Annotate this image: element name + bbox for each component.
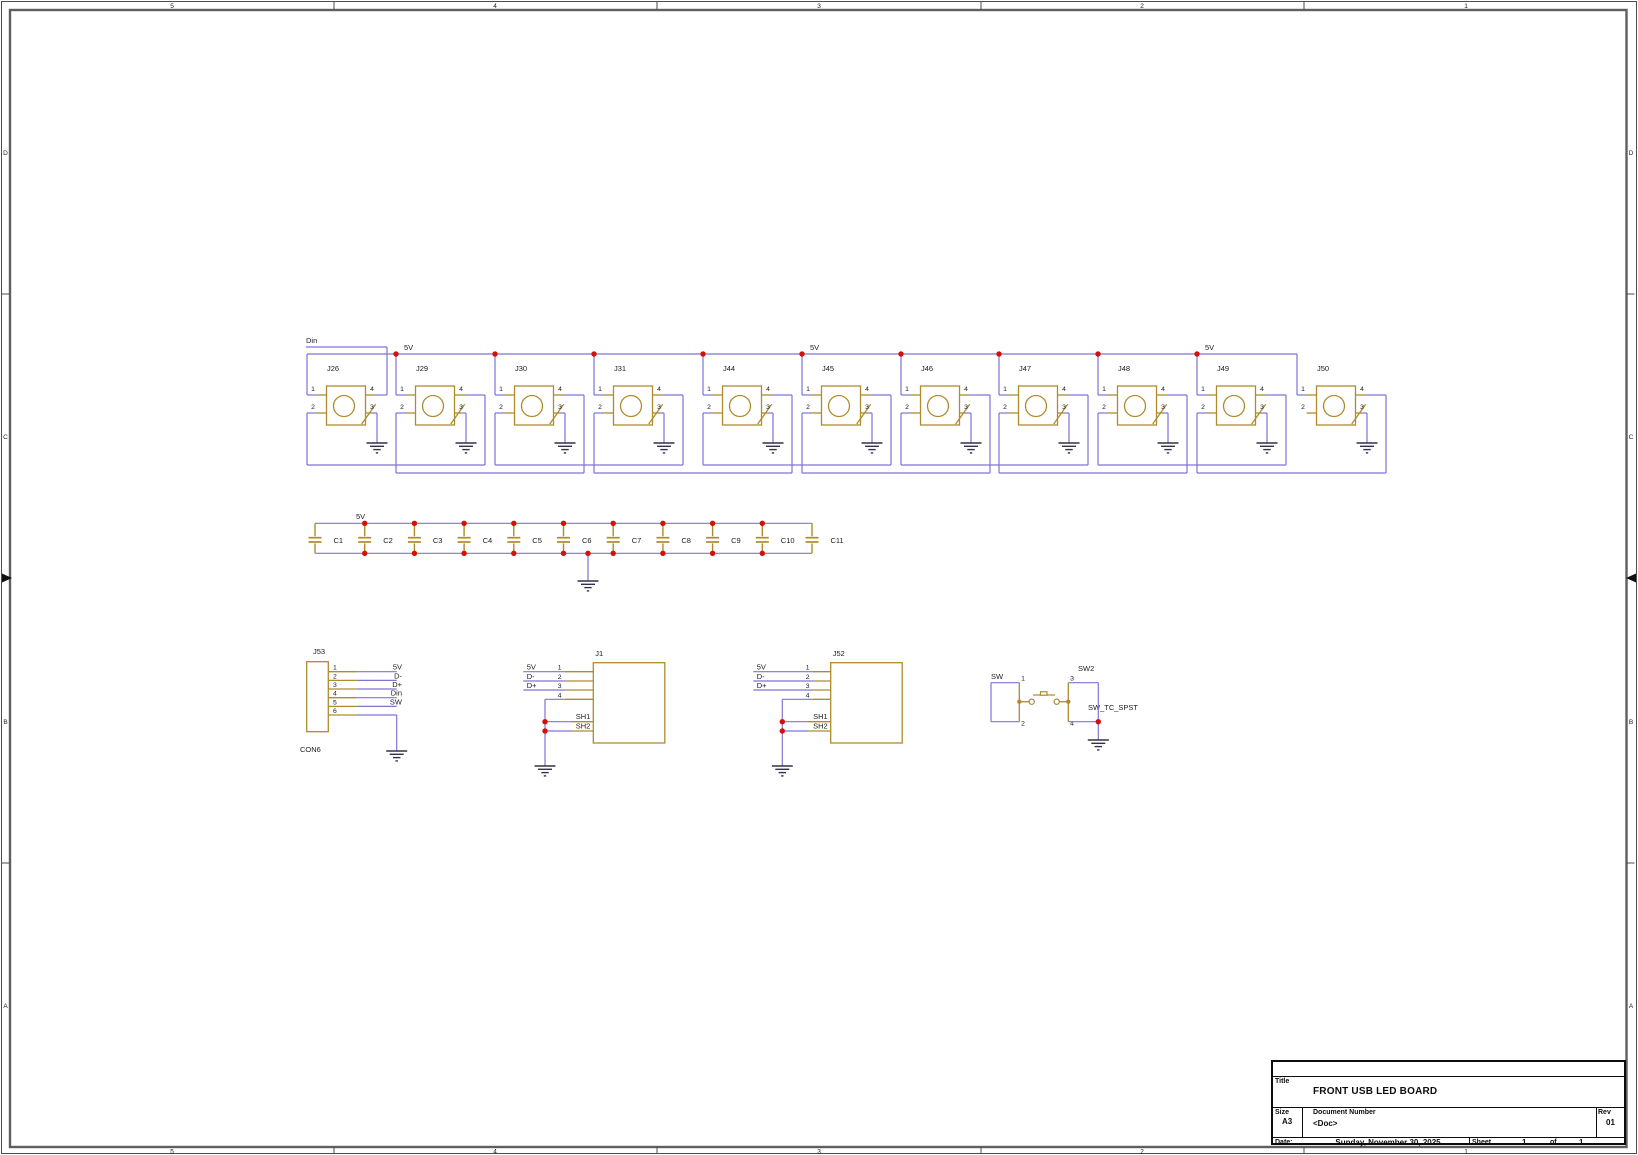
of-label: of	[1550, 1139, 1557, 1146]
svg-text:J1: J1	[595, 649, 603, 658]
svg-text:C7: C7	[632, 536, 642, 545]
title-block-divider	[1273, 1076, 1624, 1077]
svg-text:2: 2	[499, 404, 503, 411]
capacitor-C7[interactable]: C7	[607, 523, 642, 553]
svg-text:1: 1	[806, 386, 810, 393]
svg-text:1: 1	[1464, 3, 1468, 10]
svg-text:SH1: SH1	[813, 712, 828, 721]
title-block-divider	[1273, 1107, 1624, 1108]
capacitor-C1[interactable]: C1	[309, 523, 344, 553]
junction-dot	[561, 551, 566, 556]
svg-text:C6: C6	[582, 536, 592, 545]
svg-text:C1: C1	[334, 536, 344, 545]
svg-text:J30: J30	[515, 364, 527, 373]
junction-dot	[660, 521, 665, 526]
svg-text:3: 3	[558, 683, 562, 690]
svg-text:SH2: SH2	[813, 722, 828, 731]
svg-text:1: 1	[1021, 676, 1025, 683]
junction-dot	[542, 719, 547, 724]
capacitor-C9[interactable]: C9	[706, 523, 741, 553]
svg-text:C9: C9	[731, 536, 741, 545]
svg-text:J45: J45	[822, 364, 834, 373]
junction-dot	[700, 351, 705, 356]
svg-text:D+: D+	[392, 680, 402, 689]
junction-dot	[511, 551, 516, 556]
svg-text:C: C	[3, 434, 8, 441]
schematic-canvas[interactable]: 5544332211DDCCBBAA5V5V5VDinJ261243J29124…	[0, 0, 1638, 1155]
svg-text:J46: J46	[921, 364, 933, 373]
svg-text:J47: J47	[1019, 364, 1031, 373]
svg-text:CON6: CON6	[300, 745, 321, 754]
svg-text:3: 3	[817, 1149, 821, 1155]
size-value: A3	[1282, 1118, 1292, 1126]
svg-text:SH1: SH1	[576, 712, 591, 721]
junction-dot	[1096, 719, 1101, 724]
svg-text:3: 3	[1360, 404, 1364, 411]
svg-text:J44: J44	[723, 364, 735, 373]
svg-text:1: 1	[707, 386, 711, 393]
svg-text:5: 5	[333, 699, 337, 706]
schematic-page: 5544332211DDCCBBAA5V5V5VDinJ261243J29124…	[0, 0, 1638, 1155]
junction-dot	[611, 521, 616, 526]
svg-text:3: 3	[657, 404, 661, 411]
svg-text:2: 2	[333, 673, 337, 680]
led-J46[interactable]: J461243	[901, 354, 1088, 465]
led-J30[interactable]: J301243	[495, 354, 683, 465]
date-label: Date:	[1275, 1139, 1293, 1146]
junction-dot	[760, 551, 765, 556]
svg-text:J29: J29	[416, 364, 428, 373]
svg-text:4: 4	[964, 386, 968, 393]
svg-text:4: 4	[1062, 386, 1066, 393]
svg-text:J48: J48	[1118, 364, 1130, 373]
title-block-divider	[1469, 1137, 1470, 1144]
rev-value: 01	[1606, 1119, 1615, 1127]
svg-text:3: 3	[1070, 676, 1074, 683]
svg-text:3: 3	[806, 683, 810, 690]
led-J48[interactable]: J481243	[1098, 354, 1286, 465]
date-value: Sunday, November 30, 2025	[1308, 1139, 1468, 1147]
svg-text:C10: C10	[781, 536, 795, 545]
svg-text:5V: 5V	[810, 343, 819, 352]
title-label: Title	[1275, 1078, 1289, 1085]
svg-text:C4: C4	[483, 536, 493, 545]
document-number-value: <Doc>	[1313, 1120, 1337, 1128]
capacitor-C4[interactable]: C4	[458, 523, 493, 553]
document-number-label: Document Number	[1313, 1109, 1376, 1116]
schematic-title: FRONT USB LED BOARD	[1313, 1087, 1437, 1097]
junction-dot	[780, 728, 785, 733]
svg-text:3: 3	[964, 404, 968, 411]
svg-text:4: 4	[370, 386, 374, 393]
sheet-label: Sheet	[1472, 1139, 1491, 1146]
junction-dot	[461, 521, 466, 526]
svg-text:1: 1	[1301, 386, 1305, 393]
size-label: Size	[1275, 1109, 1289, 1116]
junction-dot	[710, 551, 715, 556]
junction-dot	[393, 351, 398, 356]
svg-text:1: 1	[1003, 386, 1007, 393]
svg-text:D-: D-	[527, 672, 535, 681]
svg-text:C3: C3	[433, 536, 443, 545]
title-block-divider	[1596, 1107, 1597, 1137]
svg-text:D-: D-	[394, 671, 402, 680]
svg-text:3: 3	[1161, 404, 1165, 411]
svg-text:2: 2	[1301, 404, 1305, 411]
svg-text:A: A	[3, 1003, 8, 1010]
junction-dot	[561, 521, 566, 526]
svg-text:4: 4	[333, 691, 337, 698]
svg-text:SH2: SH2	[576, 722, 591, 731]
junction-dot	[362, 521, 367, 526]
svg-text:C2: C2	[383, 536, 393, 545]
svg-text:5V: 5V	[1205, 343, 1214, 352]
svg-text:C11: C11	[831, 536, 844, 545]
capacitor-C5[interactable]: C5	[507, 523, 542, 553]
svg-text:4: 4	[459, 386, 463, 393]
svg-text:5V: 5V	[527, 663, 536, 672]
svg-text:1: 1	[806, 665, 810, 672]
svg-text:2: 2	[1003, 404, 1007, 411]
junction-dot	[585, 551, 590, 556]
svg-text:4: 4	[1360, 386, 1364, 393]
svg-text:B: B	[1629, 719, 1633, 726]
svg-text:C5: C5	[532, 536, 542, 545]
svg-text:3: 3	[817, 3, 821, 10]
svg-text:D-: D-	[757, 672, 765, 681]
svg-text:C8: C8	[681, 536, 691, 545]
svg-text:4: 4	[766, 386, 770, 393]
svg-text:SW_TC_SPST: SW_TC_SPST	[1088, 703, 1138, 712]
svg-text:2: 2	[558, 674, 562, 681]
capacitor-C6[interactable]: C6	[557, 523, 592, 553]
svg-text:J31: J31	[614, 364, 626, 373]
svg-text:B: B	[3, 719, 7, 726]
svg-text:6: 6	[333, 708, 337, 715]
led-row: 5V5V5VDinJ261243J291243J301243J311243J44…	[306, 336, 1386, 473]
svg-text:3: 3	[1062, 404, 1066, 411]
svg-text:2: 2	[598, 404, 602, 411]
svg-text:1: 1	[311, 386, 315, 393]
svg-text:J50: J50	[1317, 364, 1329, 373]
svg-text:J52: J52	[833, 649, 845, 658]
svg-text:1: 1	[400, 386, 404, 393]
svg-text:Din: Din	[306, 336, 317, 345]
junction-dot	[1095, 351, 1100, 356]
svg-text:2: 2	[1140, 3, 1144, 10]
svg-text:4: 4	[657, 386, 661, 393]
svg-text:2: 2	[1201, 404, 1205, 411]
svg-text:4: 4	[493, 3, 497, 10]
svg-text:A: A	[1629, 1003, 1634, 1010]
svg-text:1: 1	[598, 386, 602, 393]
svg-text:4: 4	[493, 1149, 497, 1155]
svg-text:1: 1	[558, 665, 562, 672]
svg-text:3: 3	[766, 404, 770, 411]
svg-text:2: 2	[1021, 721, 1025, 728]
svg-text:2: 2	[905, 404, 909, 411]
svg-text:5: 5	[170, 3, 174, 10]
svg-text:1: 1	[499, 386, 503, 393]
svg-text:SW: SW	[390, 697, 403, 706]
junction-dot	[710, 521, 715, 526]
svg-text:1: 1	[1102, 386, 1106, 393]
svg-text:4: 4	[558, 692, 562, 699]
svg-text:5: 5	[170, 1149, 174, 1155]
led-J50[interactable]: J501243	[1297, 354, 1378, 453]
svg-text:3: 3	[370, 404, 374, 411]
capacitor-C8[interactable]: C8	[656, 523, 691, 553]
svg-text:2: 2	[1102, 404, 1106, 411]
junction-dot	[760, 521, 765, 526]
junction-dot	[799, 351, 804, 356]
svg-text:2: 2	[400, 404, 404, 411]
capacitor-C3[interactable]: C3	[408, 523, 443, 553]
junction-dot	[611, 551, 616, 556]
svg-text:4: 4	[1260, 386, 1264, 393]
connector-j52[interactable]: J5212345VD-D+SH1SH2	[753, 649, 902, 776]
connector-j53[interactable]: J53CON61234565VD-D+DinSW	[300, 647, 407, 761]
sheet-total: 1	[1579, 1139, 1583, 1147]
svg-text:1: 1	[1464, 1149, 1468, 1155]
title-block-divider	[1302, 1107, 1303, 1137]
svg-text:J49: J49	[1217, 364, 1229, 373]
svg-text:D+: D+	[757, 681, 767, 690]
junction-dot	[542, 728, 547, 733]
junction-dot	[492, 351, 497, 356]
svg-text:1: 1	[905, 386, 909, 393]
page-border: 5544332211DDCCBBAA	[2, 2, 1637, 1155]
svg-text:2: 2	[806, 674, 810, 681]
capacitor-C11[interactable]: C11	[806, 523, 844, 553]
svg-text:D: D	[3, 150, 8, 157]
svg-text:5V: 5V	[356, 512, 365, 521]
capacitor-C2[interactable]: C2	[358, 523, 393, 553]
svg-text:3: 3	[459, 404, 463, 411]
svg-text:Din: Din	[391, 689, 402, 698]
svg-text:3: 3	[558, 404, 562, 411]
svg-text:J26: J26	[327, 364, 339, 373]
svg-text:2: 2	[806, 404, 810, 411]
svg-text:SW2: SW2	[1078, 664, 1094, 673]
svg-text:3: 3	[865, 404, 869, 411]
junction-dot	[660, 551, 665, 556]
sheet-number: 1	[1522, 1139, 1526, 1147]
switch-sw2[interactable]: SWSW2SW_TC_SPST1234	[991, 664, 1138, 750]
svg-text:SW: SW	[991, 672, 1004, 681]
junction-dot	[511, 521, 516, 526]
junction-dot	[1194, 351, 1199, 356]
svg-text:J53: J53	[313, 647, 325, 656]
junction-dot	[591, 351, 596, 356]
svg-text:4: 4	[865, 386, 869, 393]
junction-dot	[461, 551, 466, 556]
svg-text:D+: D+	[527, 681, 537, 690]
svg-text:5V: 5V	[757, 663, 766, 672]
svg-text:3: 3	[333, 682, 337, 689]
junction-dot	[412, 551, 417, 556]
svg-text:4: 4	[558, 386, 562, 393]
junction-dot	[780, 719, 785, 724]
svg-text:2: 2	[311, 404, 315, 411]
svg-text:C: C	[1629, 434, 1634, 441]
svg-text:D: D	[1629, 150, 1634, 157]
capacitor-C10[interactable]: C10	[756, 523, 795, 553]
junction-dot	[898, 351, 903, 356]
svg-text:4: 4	[1161, 386, 1165, 393]
svg-text:2: 2	[707, 404, 711, 411]
svg-text:5V: 5V	[393, 663, 402, 672]
title-block: Title FRONT USB LED BOARD Size A3 Docume…	[1271, 1060, 1626, 1145]
svg-text:4: 4	[806, 692, 810, 699]
rev-label: Rev	[1598, 1109, 1611, 1116]
svg-text:1: 1	[1201, 386, 1205, 393]
svg-text:5V: 5V	[404, 343, 413, 352]
svg-text:1: 1	[333, 665, 337, 672]
junction-dot	[996, 351, 1001, 356]
connector-j1[interactable]: J112345VD-D+SH1SH2	[523, 649, 665, 776]
junction-dot	[412, 521, 417, 526]
junction-dot	[362, 551, 367, 556]
svg-text:3: 3	[1260, 404, 1264, 411]
svg-text:2: 2	[1140, 1149, 1144, 1155]
capacitor-row: 5VC1C2C3C4C5C6C7C8C9C10C11	[309, 512, 844, 591]
led-J44[interactable]: J441243	[703, 354, 891, 465]
